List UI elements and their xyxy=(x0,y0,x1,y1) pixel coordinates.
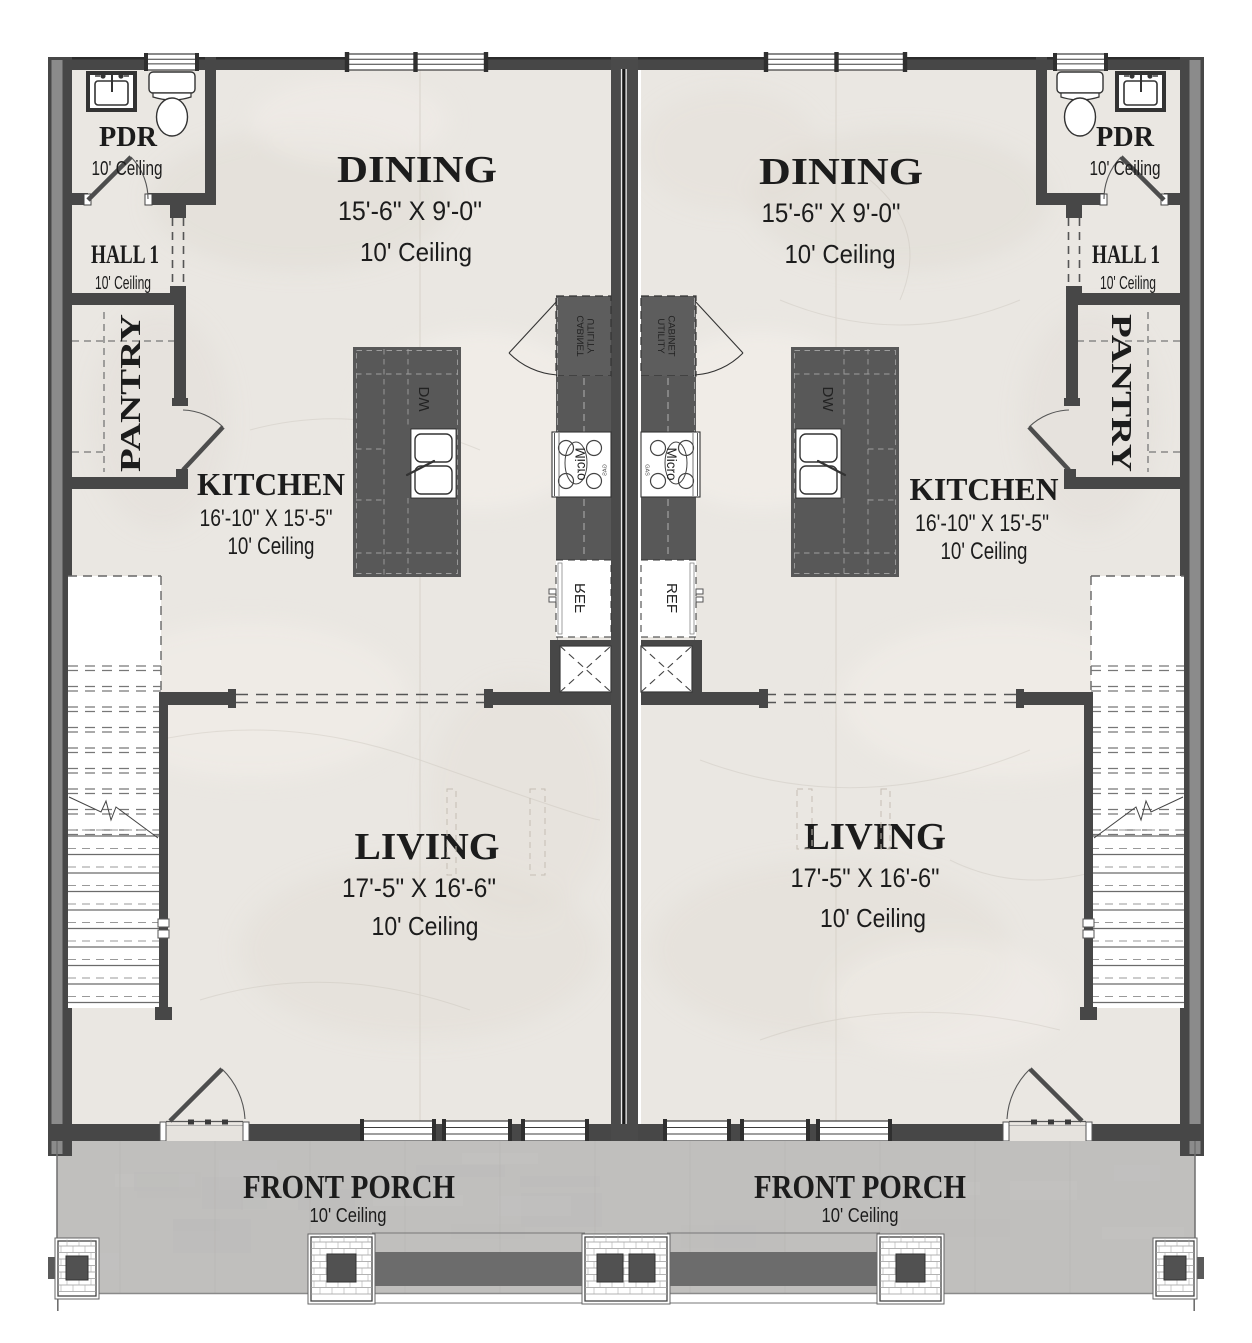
svg-text:10' Ceiling: 10' Ceiling xyxy=(1090,158,1161,180)
svg-text:10' Ceiling: 10' Ceiling xyxy=(785,239,896,269)
svg-text:17'-5" X 16'-6": 17'-5" X 16'-6" xyxy=(342,873,496,903)
svg-text:FRONT PORCH: FRONT PORCH xyxy=(754,1169,966,1206)
svg-text:PDR: PDR xyxy=(1096,122,1155,153)
svg-text:HALL 1: HALL 1 xyxy=(91,240,159,269)
svg-text:LIVING: LIVING xyxy=(804,816,946,858)
svg-text:REF: REF xyxy=(572,583,589,613)
svg-text:KITCHEN: KITCHEN xyxy=(910,471,1059,507)
svg-text:CABINET: CABINET xyxy=(576,315,587,356)
svg-text:10' Ceiling: 10' Ceiling xyxy=(820,903,926,933)
svg-text:Micro: Micro xyxy=(573,448,588,481)
svg-text:17'-5" X 16'-6": 17'-5" X 16'-6" xyxy=(791,863,940,893)
svg-text:10' Ceiling: 10' Ceiling xyxy=(372,911,479,941)
svg-text:15'-6" X 9'-0": 15'-6" X 9'-0" xyxy=(762,198,901,228)
svg-text:REF: REF xyxy=(663,583,680,613)
svg-text:GAS: GAS xyxy=(644,464,650,476)
svg-text:CABINET: CABINET xyxy=(666,315,677,356)
svg-text:10' Ceiling: 10' Ceiling xyxy=(360,237,472,267)
svg-text:PANTRY: PANTRY xyxy=(116,314,147,472)
svg-text:DINING: DINING xyxy=(337,149,497,191)
svg-text:Micro: Micro xyxy=(664,448,679,481)
svg-text:10' Ceiling: 10' Ceiling xyxy=(941,538,1028,565)
svg-text:LIVING: LIVING xyxy=(355,826,500,868)
svg-text:10' Ceiling: 10' Ceiling xyxy=(95,273,151,293)
svg-text:KITCHEN: KITCHEN xyxy=(197,466,345,502)
svg-text:DINING: DINING xyxy=(759,151,923,193)
svg-text:16'-10" X 15'-5": 16'-10" X 15'-5" xyxy=(915,510,1049,537)
svg-text:10' Ceiling: 10' Ceiling xyxy=(92,158,163,180)
svg-text:10' Ceiling: 10' Ceiling xyxy=(310,1205,387,1227)
svg-text:GAS: GAS xyxy=(603,464,609,476)
svg-text:UTILITY: UTILITY xyxy=(655,318,666,354)
svg-text:15'-6" X 9'-0": 15'-6" X 9'-0" xyxy=(338,196,482,226)
svg-text:10' Ceiling: 10' Ceiling xyxy=(822,1205,899,1227)
svg-text:DW: DW xyxy=(819,387,836,413)
svg-text:HALL 1: HALL 1 xyxy=(1092,240,1160,269)
svg-text:10' Ceiling: 10' Ceiling xyxy=(1100,273,1156,293)
svg-text:16'-10" X 15'-5": 16'-10" X 15'-5" xyxy=(200,505,333,532)
svg-text:10' Ceiling: 10' Ceiling xyxy=(228,533,315,560)
svg-text:FRONT PORCH: FRONT PORCH xyxy=(243,1169,455,1206)
svg-text:DW: DW xyxy=(416,387,433,413)
svg-text:UTILITY: UTILITY xyxy=(586,318,597,354)
svg-text:PDR: PDR xyxy=(99,122,158,153)
svg-text:PANTRY: PANTRY xyxy=(1105,314,1136,472)
